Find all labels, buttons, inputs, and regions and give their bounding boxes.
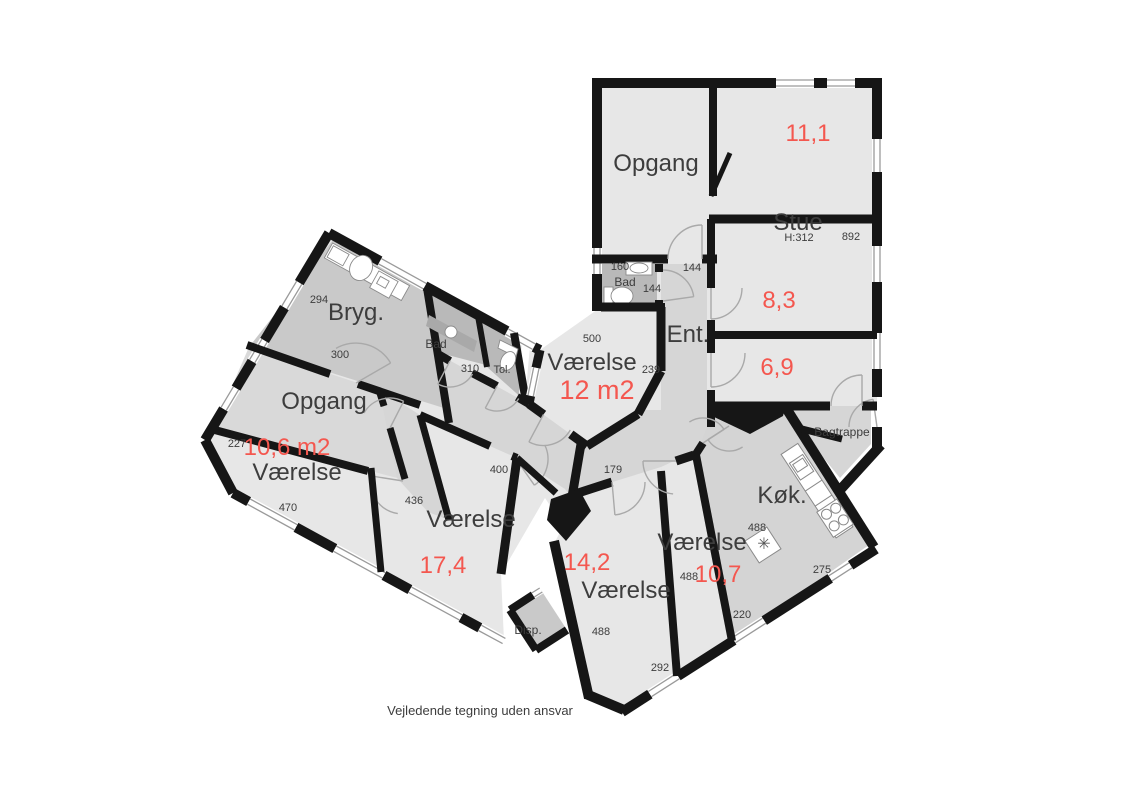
svg-text:Opgang: Opgang xyxy=(281,388,366,415)
svg-text:Tol.: Tol. xyxy=(493,364,510,376)
svg-text:470: 470 xyxy=(279,502,297,514)
svg-text:400: 400 xyxy=(490,464,508,476)
svg-text:Køk.: Køk. xyxy=(757,482,806,509)
svg-text:Værelse: Værelse xyxy=(426,506,515,533)
svg-text:310: 310 xyxy=(461,363,479,375)
svg-text:144: 144 xyxy=(643,283,661,295)
svg-text:Værelse: Værelse xyxy=(581,577,670,604)
svg-text:Værelse: Værelse xyxy=(252,459,341,486)
svg-text:Værelse: Værelse xyxy=(657,529,746,556)
svg-text:12 m2: 12 m2 xyxy=(559,375,634,405)
svg-text:17,4: 17,4 xyxy=(420,552,467,579)
svg-text:275: 275 xyxy=(813,564,831,576)
svg-text:Bagtrappe: Bagtrappe xyxy=(814,425,870,439)
svg-text:Bad: Bad xyxy=(614,275,635,289)
svg-text:Bryg.: Bryg. xyxy=(328,299,384,326)
svg-text:Opgang: Opgang xyxy=(613,150,698,177)
svg-text:Ent.: Ent. xyxy=(667,321,710,348)
svg-text:500: 500 xyxy=(583,333,601,345)
svg-text:8,3: 8,3 xyxy=(762,287,795,314)
svg-text:300: 300 xyxy=(331,349,349,361)
svg-text:436: 436 xyxy=(405,495,423,507)
svg-text:179: 179 xyxy=(604,464,622,476)
svg-text:✳: ✳ xyxy=(757,536,770,553)
svg-text:892: 892 xyxy=(842,231,860,243)
svg-text:11,1: 11,1 xyxy=(786,120,831,147)
svg-text:294: 294 xyxy=(310,294,328,306)
svg-text:6,9: 6,9 xyxy=(760,354,793,381)
svg-text:14,2: 14,2 xyxy=(564,549,611,576)
svg-text:Værelse: Værelse xyxy=(547,349,636,376)
svg-text:239: 239 xyxy=(642,364,660,376)
svg-text:H:312: H:312 xyxy=(784,232,813,244)
svg-text:144: 144 xyxy=(683,262,701,274)
svg-text:220: 220 xyxy=(733,609,751,621)
svg-text:488: 488 xyxy=(592,626,610,638)
svg-text:160: 160 xyxy=(611,261,629,273)
svg-text:Disp.: Disp. xyxy=(514,623,541,637)
svg-text:488: 488 xyxy=(748,522,766,534)
svg-text:Vejledende tegning uden ansvar: Vejledende tegning uden ansvar xyxy=(387,703,573,718)
svg-text:10,6 m2: 10,6 m2 xyxy=(244,434,331,461)
svg-text:10,7: 10,7 xyxy=(695,561,742,588)
svg-text:Bad: Bad xyxy=(425,337,446,351)
svg-text:292: 292 xyxy=(651,662,669,674)
